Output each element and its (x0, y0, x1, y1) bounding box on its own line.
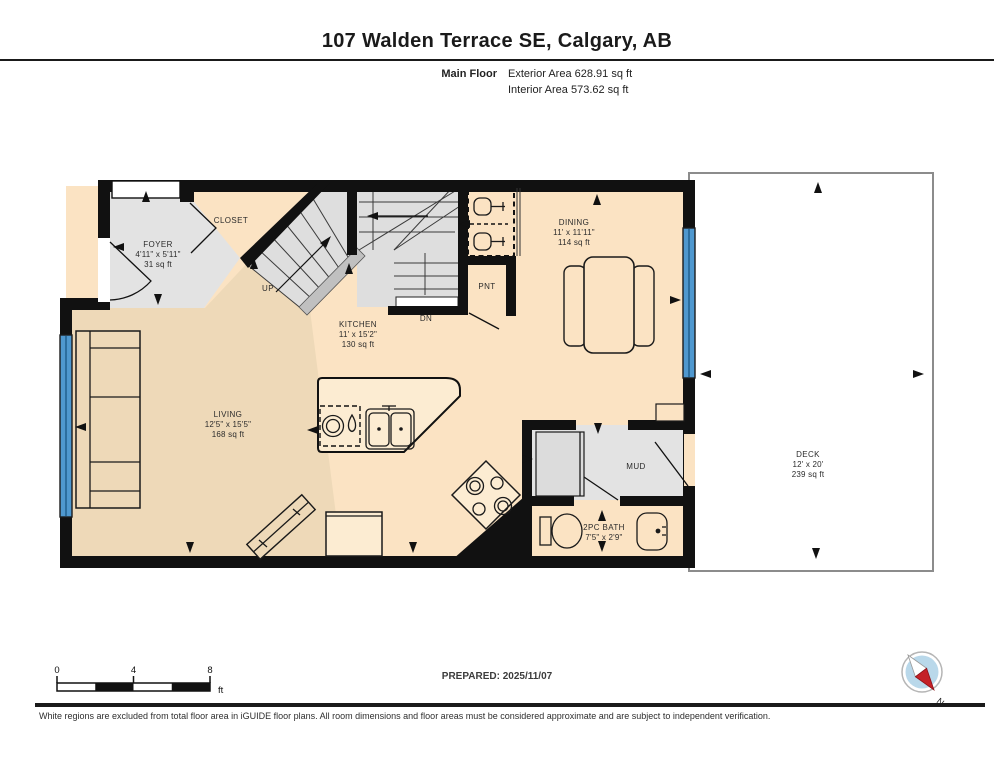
closet-label: CLOSET (214, 216, 248, 225)
bench (656, 404, 684, 421)
kitchen-dims: 11' x 15'2" (339, 330, 377, 339)
mud-deck-door-opening (684, 434, 695, 486)
front-door-opening (98, 238, 110, 302)
kitchen-cabinet (326, 512, 382, 556)
scale-unit: ft (218, 685, 224, 696)
foyer-label: FOYER (143, 240, 173, 249)
sofa (76, 331, 140, 508)
deck-area: 239 sq ft (792, 470, 825, 479)
living-area: 168 sq ft (212, 430, 245, 439)
disclaimer-text: White regions are excluded from total fl… (39, 711, 959, 721)
deck-region (689, 173, 933, 571)
foyer-dims: 4'11" x 5'11" (135, 250, 180, 259)
deck-dims: 12' x 20' (792, 460, 823, 469)
kitchen-area: 130 sq ft (342, 340, 375, 349)
living-label: LIVING (214, 410, 243, 419)
prepared-date-label: PREPARED: 2025/11/07 (0, 671, 994, 682)
mud-closet (536, 432, 584, 496)
deck-label: DECK (796, 450, 820, 459)
living-dims: 12'5" x 15'5" (205, 420, 251, 429)
floorplan-page: 107 Walden Terrace SE, Calgary, AB Main … (0, 0, 994, 768)
kitchen-label: KITCHEN (339, 320, 377, 329)
dining-table (584, 257, 634, 353)
dining-chair (564, 266, 586, 346)
floor-plan-svg: FOYER 4'11" x 5'11" 31 sq ft CLOSET UP D… (0, 0, 994, 768)
dining-area: 114 sq ft (558, 238, 590, 247)
dining-table-set (564, 257, 654, 353)
stairs-down-label: DN (420, 314, 432, 323)
bath-dims: 7'5" x 2'9" (585, 533, 622, 542)
footer-divider (35, 703, 985, 707)
dining-dims: 11' x 11'11" (553, 228, 595, 237)
dining-label: DINING (559, 218, 589, 227)
stairs-up-label: UP (262, 284, 274, 293)
pantry-label: PNT (478, 282, 495, 291)
foyer-area: 31 sq ft (144, 260, 172, 269)
dining-chair (632, 266, 654, 346)
bath-label: 2PC BATH (583, 523, 625, 532)
mud-label: MUD (626, 462, 645, 471)
